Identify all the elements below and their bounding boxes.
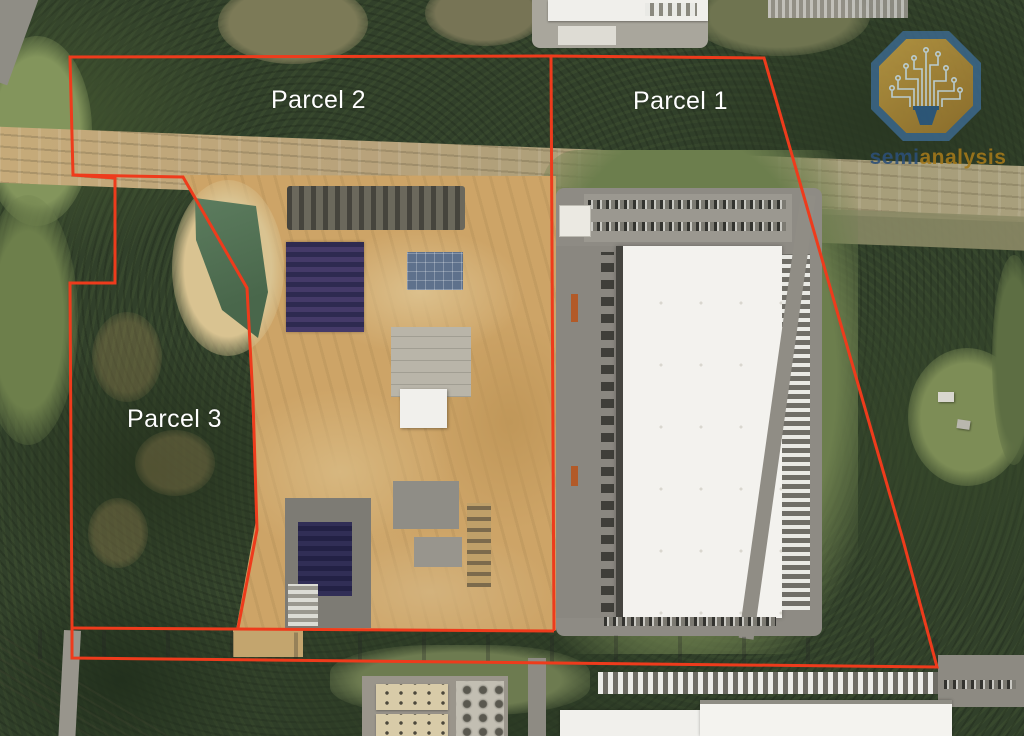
car-row bbox=[944, 680, 1016, 689]
parcel-1-label: Parcel 1 bbox=[633, 87, 728, 116]
car-row bbox=[588, 200, 786, 209]
cooling-tanks bbox=[456, 681, 504, 736]
concrete-slab bbox=[391, 327, 471, 397]
car-row bbox=[588, 222, 786, 231]
house bbox=[956, 419, 970, 430]
orange-container bbox=[571, 294, 578, 322]
car-row bbox=[604, 617, 776, 626]
parcel-3-label: Parcel 3 bbox=[127, 405, 222, 434]
thinned-woods bbox=[92, 312, 162, 402]
satellite-parcel-map: Parcel 2 Parcel 1 Parcel 3 bbox=[0, 0, 1024, 736]
trailer-row bbox=[601, 252, 614, 612]
warehouse-building bbox=[560, 710, 700, 736]
equipment-row bbox=[467, 503, 491, 587]
concrete-pad bbox=[414, 537, 462, 567]
small-building bbox=[559, 205, 591, 237]
trailer-row bbox=[598, 672, 938, 694]
utility-building bbox=[376, 714, 448, 736]
brand-analysis-text: analysis bbox=[919, 146, 1006, 169]
utility-building bbox=[376, 684, 448, 710]
building-annex bbox=[558, 26, 616, 45]
parcel-2-label: Parcel 2 bbox=[271, 86, 366, 115]
circuit-tree-icon bbox=[879, 39, 973, 133]
warehouse-building bbox=[700, 700, 952, 736]
concrete-pad bbox=[393, 481, 459, 529]
thinned-woods bbox=[135, 430, 215, 496]
road bbox=[528, 658, 546, 736]
material-stacks bbox=[286, 242, 364, 332]
house bbox=[938, 392, 954, 402]
brand-semi-text: semi bbox=[870, 146, 920, 169]
semianalysis-watermark: semianalysis bbox=[858, 24, 1018, 174]
orange-container bbox=[571, 466, 578, 486]
building-under-construction bbox=[400, 389, 447, 428]
parked-trucks bbox=[645, 3, 697, 16]
thinned-woods bbox=[88, 498, 148, 568]
foundation-forms bbox=[407, 252, 463, 290]
semianalysis-wordmark: semianalysis bbox=[858, 146, 1018, 170]
material-stacks bbox=[288, 584, 318, 626]
gravel-laydown-pad bbox=[287, 186, 465, 230]
parking-lot bbox=[768, 0, 908, 18]
